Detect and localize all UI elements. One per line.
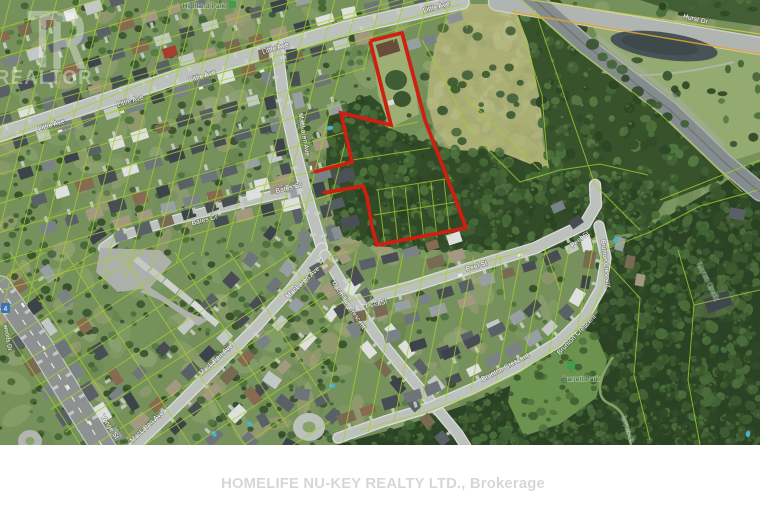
- svg-text:REALTOR: REALTOR: [0, 67, 93, 89]
- svg-text:HOMELIFE NU-KEY REALTY LTD., B: HOMELIFE NU-KEY REALTY LTD., Brokerage: [221, 476, 545, 492]
- svg-text:Highland Park: Highland Park: [183, 3, 226, 10]
- svg-text:4: 4: [4, 306, 8, 313]
- svg-text:Barrett Park: Barrett Park: [563, 376, 600, 383]
